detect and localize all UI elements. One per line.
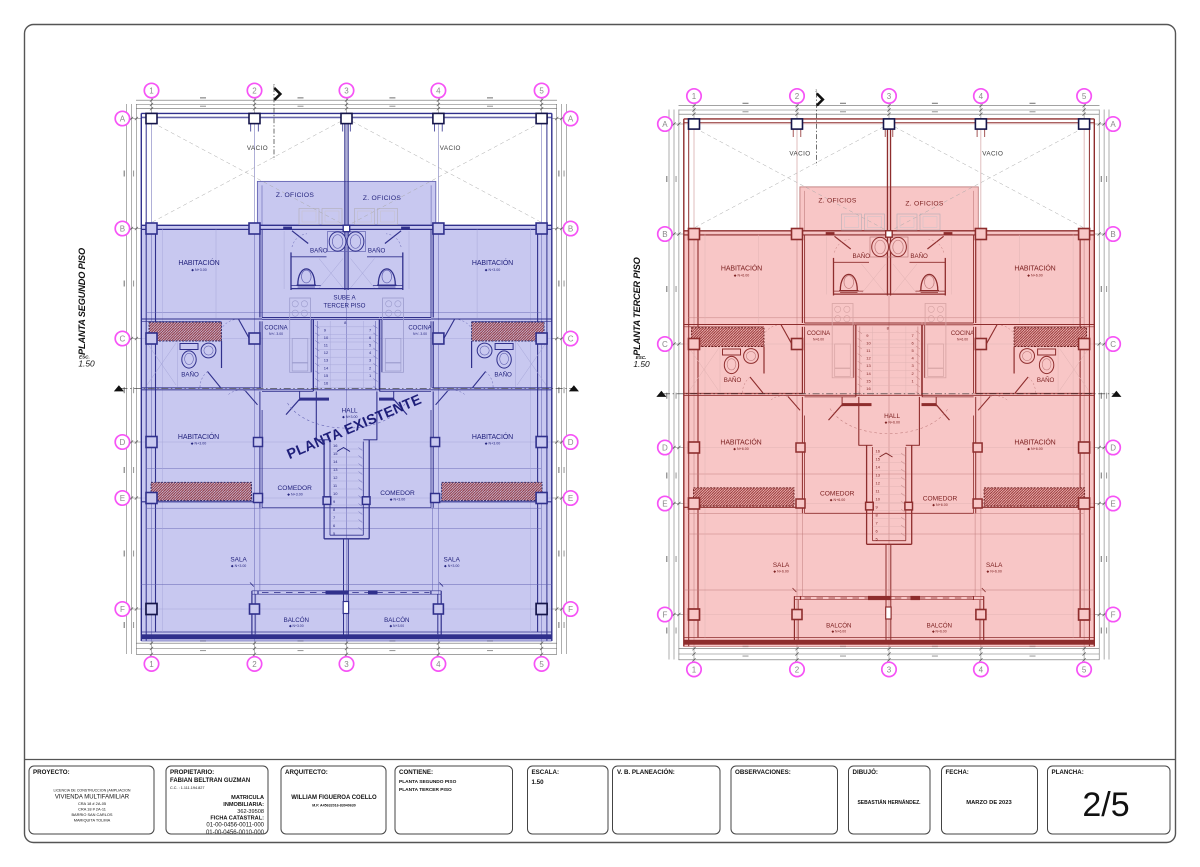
svg-text:BAÑO: BAÑO	[724, 377, 742, 384]
svg-text:1.50: 1.50	[532, 779, 545, 786]
svg-text:14: 14	[324, 365, 329, 370]
svg-text:A: A	[568, 114, 574, 123]
svg-text:◆ N+3.00: ◆ N+3.00	[191, 268, 206, 272]
svg-text:2: 2	[252, 660, 257, 669]
svg-text:14: 14	[333, 459, 338, 464]
svg-text:N+6.00: N+6.00	[813, 337, 824, 341]
svg-text:D: D	[1110, 443, 1116, 452]
svg-text:2: 2	[815, 89, 817, 93]
svg-text:N+/- 3.00: N+/- 3.00	[413, 332, 427, 336]
svg-text:COMEDOR: COMEDOR	[923, 495, 958, 502]
svg-text:SALA: SALA	[230, 557, 247, 564]
svg-text:2: 2	[273, 84, 275, 88]
svg-text:COMEDOR: COMEDOR	[277, 485, 312, 492]
svg-text:5: 5	[1082, 665, 1087, 674]
svg-text:PLANTA SEGUNDO PISO: PLANTA SEGUNDO PISO	[399, 779, 457, 785]
svg-text:◆ N+6.00: ◆ N+6.00	[986, 570, 1001, 574]
svg-text:2/5: 2/5	[1082, 786, 1129, 824]
svg-text:4: 4	[436, 86, 441, 95]
svg-text:DIBUJÓ:: DIBUJÓ:	[853, 768, 878, 776]
svg-text:4: 4	[979, 92, 984, 101]
svg-text:4: 4	[979, 665, 984, 674]
svg-text:PLANCHA:: PLANCHA:	[1052, 769, 1084, 776]
svg-text:HABITACIÓN: HABITACIÓN	[472, 432, 513, 441]
svg-text:◆ N+3.00: ◆ N+3.00	[231, 564, 246, 568]
svg-text:10: 10	[876, 497, 881, 502]
svg-text:BAÑO: BAÑO	[1037, 377, 1055, 384]
svg-text:OBSERVACIONES:: OBSERVACIONES:	[735, 769, 791, 776]
svg-text:BAÑO: BAÑO	[910, 253, 928, 260]
svg-text:HABITACIÓN: HABITACIÓN	[472, 258, 513, 267]
svg-text:PROYECTO:: PROYECTO:	[33, 769, 70, 776]
svg-text:◆ N+6.00: ◆ N+6.00	[1027, 274, 1042, 278]
svg-text:◆ N+6.00: ◆ N+6.00	[733, 447, 748, 451]
svg-text:ARQUITECTO:: ARQUITECTO:	[285, 769, 328, 776]
svg-text:◆ N+3.00: ◆ N+3.00	[289, 624, 304, 628]
svg-text:C: C	[1110, 340, 1116, 349]
svg-text:01-00-0456-0010-000: 01-00-0456-0010-000	[206, 830, 265, 836]
svg-text:B: B	[662, 230, 667, 239]
svg-text:MATRICULA: MATRICULA	[231, 795, 264, 801]
svg-text:◆ N+6.00: ◆ N+6.00	[734, 274, 749, 278]
svg-text:◆ N+3.00: ◆ N+3.00	[485, 442, 500, 446]
svg-text:COCINA: COCINA	[807, 331, 830, 337]
svg-text:10: 10	[333, 491, 338, 496]
svg-text:A: A	[1110, 120, 1116, 129]
svg-text:B: B	[568, 224, 573, 233]
svg-text:VACIO: VACIO	[982, 151, 1003, 158]
svg-text:SALA: SALA	[773, 562, 790, 569]
svg-text:1: 1	[149, 86, 154, 95]
svg-text:A: A	[120, 114, 126, 123]
svg-text:BAÑO: BAÑO	[181, 372, 199, 379]
svg-text:F: F	[1111, 610, 1116, 619]
svg-text:10: 10	[324, 335, 329, 340]
svg-text:SUBE A: SUBE A	[333, 295, 356, 302]
svg-text:◆ N+6.00: ◆ N+6.00	[1027, 447, 1042, 451]
svg-text:C: C	[568, 334, 574, 343]
svg-text:5: 5	[1082, 92, 1087, 101]
svg-text:◆ N+6.00: ◆ N+6.00	[773, 570, 788, 574]
svg-text:F: F	[568, 605, 573, 614]
svg-text:COCINA: COCINA	[264, 326, 287, 332]
svg-text:D: D	[120, 438, 126, 447]
svg-text:VACIO: VACIO	[789, 151, 810, 158]
svg-text:3: 3	[344, 86, 349, 95]
svg-text:BARRIO SAN CARLOS: BARRIO SAN CARLOS	[71, 812, 112, 817]
svg-text:13: 13	[876, 473, 881, 478]
svg-text:◆ N+3.00: ◆ N+3.00	[287, 493, 302, 497]
svg-text:HALL: HALL	[342, 407, 358, 414]
svg-text:12: 12	[866, 356, 871, 361]
svg-text:3: 3	[887, 665, 892, 674]
svg-text:2: 2	[795, 92, 800, 101]
svg-text:5: 5	[539, 86, 544, 95]
svg-text:A: A	[662, 120, 668, 129]
svg-text:3: 3	[344, 660, 349, 669]
svg-text:13: 13	[866, 363, 871, 368]
svg-text:15: 15	[324, 373, 329, 378]
svg-text:MARIQUITA TOLIMA: MARIQUITA TOLIMA	[74, 818, 111, 823]
svg-text:16: 16	[324, 381, 329, 386]
svg-text:PLANTA SEGUNDO PISO: PLANTA SEGUNDO PISO	[77, 248, 87, 355]
svg-text:HABITACIÓN: HABITACIÓN	[1014, 437, 1055, 446]
svg-text:1.50: 1.50	[633, 359, 650, 369]
svg-text:01-00-0456-0011-000: 01-00-0456-0011-000	[206, 823, 264, 829]
svg-text:12: 12	[333, 475, 338, 480]
svg-text:HABITACIÓN: HABITACIÓN	[178, 258, 219, 267]
svg-text:2: 2	[252, 86, 257, 95]
svg-text:362-39508: 362-39508	[237, 809, 264, 815]
svg-text:BALCÓN: BALCÓN	[927, 623, 952, 630]
svg-text:BAÑO: BAÑO	[494, 372, 512, 379]
svg-text:13: 13	[324, 358, 329, 363]
svg-text:PLANTA TERCER PISO: PLANTA TERCER PISO	[399, 787, 452, 793]
svg-text:16: 16	[866, 386, 871, 391]
svg-text:F: F	[120, 605, 125, 614]
svg-text:V. B. PLANEACIÓN:: V. B. PLANEACIÓN:	[617, 768, 675, 776]
svg-text:Z. OFICIOS: Z. OFICIOS	[818, 197, 857, 204]
svg-text:13: 13	[333, 467, 338, 472]
svg-text:◆ N+3.00: ◆ N+3.00	[485, 268, 500, 272]
svg-text:TERCER PISO: TERCER PISO	[324, 303, 366, 310]
svg-text:Z. OFICIOS: Z. OFICIOS	[905, 200, 944, 207]
svg-text:VACIO: VACIO	[247, 145, 268, 152]
svg-text:M.P. A45632016-83040630: M.P. A45632016-83040630	[312, 804, 356, 808]
svg-text:D: D	[662, 443, 668, 452]
svg-text:1: 1	[149, 660, 154, 669]
svg-text:◆ N+3.00: ◆ N+3.00	[390, 624, 405, 628]
svg-text:2: 2	[795, 665, 800, 674]
svg-text:Z. OFICIOS: Z. OFICIOS	[363, 195, 402, 202]
svg-text:FECHA:: FECHA:	[946, 769, 969, 776]
svg-text:WILLIAM FIGUEROA COELLO: WILLIAM FIGUEROA COELLO	[291, 795, 377, 801]
svg-text:COCINA: COCINA	[408, 326, 431, 332]
svg-text:C: C	[662, 340, 668, 349]
svg-text:16: 16	[333, 443, 338, 448]
svg-text:PLANTA TERCER PISO: PLANTA TERCER PISO	[632, 257, 642, 355]
svg-text:HABITACIÓN: HABITACIÓN	[721, 264, 762, 273]
svg-text:◆ N+6.00: ◆ N+6.00	[932, 630, 947, 634]
svg-text:◆ N+3.00: ◆ N+3.00	[390, 497, 405, 501]
svg-text:N+/- 3.00: N+/- 3.00	[269, 332, 283, 336]
svg-text:Z. OFICIOS: Z. OFICIOS	[276, 192, 315, 199]
svg-text:INMOBILIARIA:: INMOBILIARIA:	[223, 802, 264, 808]
svg-text:12: 12	[324, 350, 329, 355]
svg-text:PROPIETARIO:: PROPIETARIO:	[170, 769, 214, 776]
svg-text:COCINA: COCINA	[951, 331, 974, 337]
svg-text:BALCÓN: BALCÓN	[384, 617, 409, 624]
svg-text:E: E	[662, 499, 667, 508]
svg-text:COMEDOR: COMEDOR	[380, 490, 415, 497]
svg-text:1: 1	[692, 665, 697, 674]
svg-text:FABIAN BELTRAN GUZMAN: FABIAN BELTRAN GUZMAN	[170, 778, 250, 784]
svg-text:N+6.00: N+6.00	[957, 337, 968, 341]
svg-text:VACIO: VACIO	[440, 145, 461, 152]
svg-text:E: E	[1110, 499, 1115, 508]
svg-text:LICENCIA DE CONSTRUCCION (AMPL: LICENCIA DE CONSTRUCCION (AMPLIACION	[53, 789, 130, 793]
svg-text:HABITACIÓN: HABITACIÓN	[178, 432, 219, 441]
svg-text:15: 15	[866, 378, 871, 383]
svg-text:HALL: HALL	[884, 413, 900, 420]
svg-text:B: B	[1110, 230, 1115, 239]
svg-text:◆ N+6.00: ◆ N+6.00	[832, 630, 847, 634]
svg-text:◆ N+6.00: ◆ N+6.00	[932, 503, 947, 507]
svg-text:SALA: SALA	[986, 562, 1003, 569]
svg-text:COMEDOR: COMEDOR	[820, 491, 855, 498]
svg-text:12: 12	[876, 481, 881, 486]
svg-text:CRA 18 # 2A-05: CRA 18 # 2A-05	[78, 801, 106, 806]
svg-text:1: 1	[692, 92, 697, 101]
svg-text:◆ N+6.00: ◆ N+6.00	[885, 421, 900, 425]
svg-text:BAÑO: BAÑO	[853, 253, 871, 260]
svg-text:CRA 18 # 2A-11: CRA 18 # 2A-11	[78, 807, 106, 812]
svg-text:10: 10	[866, 340, 871, 345]
svg-text:4: 4	[436, 660, 441, 669]
svg-text:5: 5	[539, 660, 544, 669]
svg-text:14: 14	[876, 465, 881, 470]
svg-text:BAÑO: BAÑO	[368, 248, 386, 255]
svg-text:SALA: SALA	[444, 557, 461, 564]
svg-text:E: E	[568, 494, 573, 503]
svg-text:HABITACIÓN: HABITACIÓN	[720, 437, 761, 446]
svg-text:CONTIENE:: CONTIENE:	[399, 769, 433, 776]
svg-text:1.50: 1.50	[78, 358, 95, 368]
svg-text:BALCÓN: BALCÓN	[826, 623, 851, 630]
svg-text:C.C. : 1.111.194.827: C.C. : 1.111.194.827	[170, 786, 204, 790]
svg-text:◆ N+6.00: ◆ N+6.00	[830, 498, 845, 502]
svg-text:MARZO DE 2023: MARZO DE 2023	[966, 800, 1012, 806]
svg-text:3: 3	[887, 92, 892, 101]
svg-text:B: B	[120, 224, 125, 233]
svg-text:ESCALA:: ESCALA:	[532, 769, 560, 776]
svg-text:C: C	[120, 334, 126, 343]
svg-text:FICHA CATASTRAL:: FICHA CATASTRAL:	[210, 816, 264, 822]
svg-text:◆ N+3.00: ◆ N+3.00	[444, 564, 459, 568]
svg-text:BAÑO: BAÑO	[310, 248, 328, 255]
svg-text:VIVIENDA MULTIFAMILIAR: VIVIENDA MULTIFAMILIAR	[55, 795, 130, 801]
svg-text:16: 16	[876, 449, 881, 454]
svg-text:14: 14	[866, 371, 871, 376]
svg-text:BALCÓN: BALCÓN	[284, 617, 309, 624]
svg-text:F: F	[662, 610, 667, 619]
svg-text:◆ N+3.00: ◆ N+3.00	[191, 442, 206, 446]
svg-text:HABITACIÓN: HABITACIÓN	[1014, 264, 1055, 273]
svg-text:E: E	[120, 494, 125, 503]
svg-text:SEBASTIÁN HERNÁNDEZ.: SEBASTIÁN HERNÁNDEZ.	[857, 799, 921, 806]
svg-text:D: D	[568, 438, 574, 447]
